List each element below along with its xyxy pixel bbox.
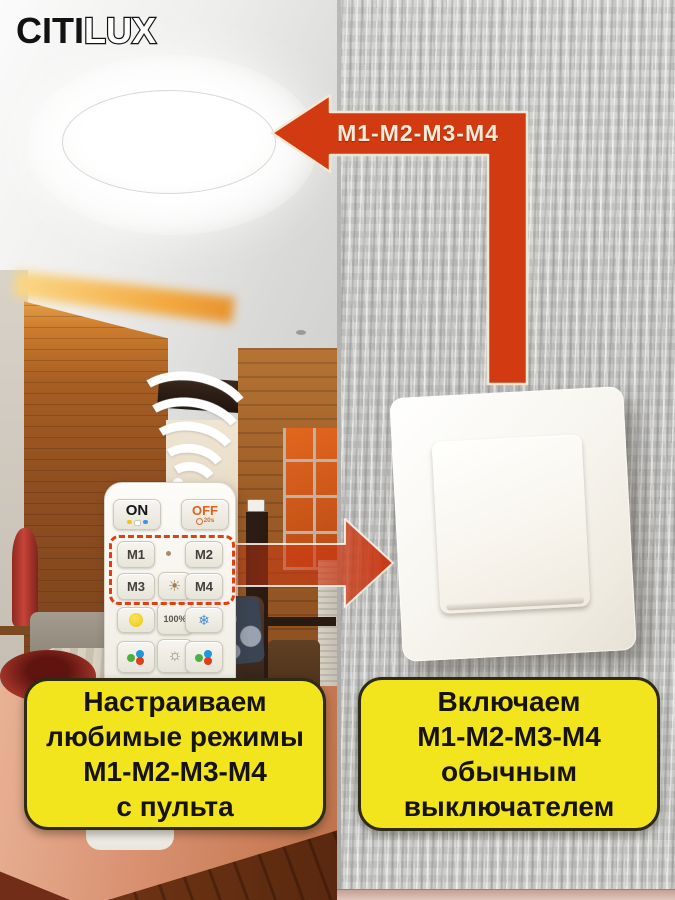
wall-switch xyxy=(389,386,636,662)
rgb-cycle-button xyxy=(185,641,223,673)
rgb-dots-icon xyxy=(127,650,145,664)
callout-left-line: любимые режимы xyxy=(46,719,304,754)
promo-image: M1-M2-M3-M4 ON OFF xyxy=(0,0,675,900)
callout-right-line: обычным xyxy=(441,754,577,789)
callout-left-line: с пульта xyxy=(116,789,233,824)
remote-control: ON OFF 20s M1 M2 M3 ☀ M4 100% ❄ xyxy=(104,482,236,704)
off-label: OFF xyxy=(192,504,218,517)
night-sun-icon: ☼ xyxy=(168,648,183,664)
ceiling-lamp xyxy=(62,90,276,194)
baseboard xyxy=(337,889,675,900)
on-label: ON xyxy=(126,503,149,518)
color-temp-dots-icon xyxy=(127,520,148,526)
timer-icon xyxy=(196,518,203,525)
warm-white-button xyxy=(117,607,155,633)
callout-left-line: Настраиваем xyxy=(83,684,266,719)
switch-rocker xyxy=(432,434,591,614)
warm-white-icon xyxy=(129,613,143,627)
callout-right-line: М1-М2-М3-М4 xyxy=(417,719,601,754)
rgb-colors-button xyxy=(117,641,155,673)
callout-left: Настраиваем любимые режимы М1-М2-М3-М4 с… xyxy=(24,678,326,830)
callout-left-line: М1-М2-М3-М4 xyxy=(83,754,267,789)
cold-white-button: ❄ xyxy=(185,607,223,633)
remote-on-button: ON xyxy=(113,499,161,530)
callout-right: Включаем М1-М2-М3-М4 обычным выключателе… xyxy=(358,677,660,831)
rgb-cycle-icon xyxy=(195,650,213,664)
brand-logo: CITI LUX xyxy=(16,10,156,52)
logo-lux: LUX xyxy=(84,10,156,52)
snowflake-icon: ❄ xyxy=(198,613,210,627)
arrow-remote-to-switch-icon xyxy=(220,498,400,618)
callout-right-line: Включаем xyxy=(438,684,581,719)
wall-shelf xyxy=(260,617,336,626)
remote-off-button: OFF 20s xyxy=(181,499,229,530)
modes-highlight-dashed-box xyxy=(109,535,235,605)
off-timer: 20s xyxy=(196,518,215,525)
arrow-modes-label: M1-M2-M3-M4 xyxy=(332,117,504,149)
callout-right-line: выключателем xyxy=(404,789,615,824)
logo-citi: CITI xyxy=(16,10,84,52)
